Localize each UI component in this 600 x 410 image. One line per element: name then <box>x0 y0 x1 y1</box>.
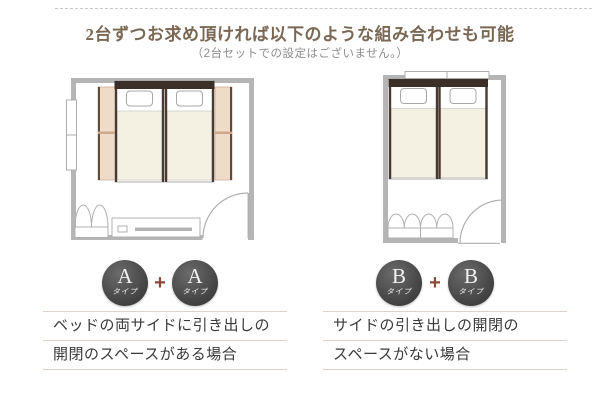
type-letter: B <box>376 264 422 288</box>
type-badge-a: A タイプ <box>102 260 148 306</box>
caption-a: ベッドの両サイドに引き出しの 開閉のスペースがある場合 <box>43 311 287 370</box>
side-drawer-right <box>215 87 232 180</box>
bed-icon <box>115 81 165 182</box>
caption-line: ベッドの両サイドに引き出しの <box>43 312 287 341</box>
headboard <box>389 79 439 87</box>
side-drawer-left <box>98 87 115 180</box>
type-badge-b: B タイプ <box>448 260 494 306</box>
top-dashed-divider <box>55 8 592 9</box>
headboard <box>438 79 488 87</box>
page-subtitle: （2台セットでの設定はございません。） <box>0 45 600 61</box>
page-title: 2台ずつお求め頂ければ以下のような組み合わせも可能 <box>0 20 600 45</box>
bed-icon <box>165 81 215 182</box>
type-suffix: タイプ <box>102 288 148 296</box>
pillow-icon <box>127 91 153 106</box>
type-suffix: タイプ <box>448 288 494 296</box>
floorplan-b-diagram <box>370 62 520 252</box>
caption-line: スペースがない場合 <box>323 341 567 370</box>
bed-combination-infographic: 2台ずつお求め頂ければ以下のような組み合わせも可能 （2台セットでの設定はござい… <box>0 0 600 410</box>
floorplan-a-diagram <box>62 62 262 252</box>
pillow-icon <box>450 89 476 104</box>
caption-b: サイドの引き出しの開閉の スペースがない場合 <box>323 311 567 370</box>
headboard <box>165 81 215 89</box>
caption-line: 開閉のスペースがある場合 <box>43 341 287 370</box>
caption-line: サイドの引き出しの開閉の <box>323 312 567 341</box>
type-suffix: タイプ <box>172 288 218 296</box>
window-icon <box>67 100 77 170</box>
headboard <box>115 81 165 89</box>
type-letter: B <box>448 264 494 288</box>
tv-board-icon <box>112 218 200 237</box>
plus-sign: + <box>424 270 446 296</box>
pillow-icon <box>401 89 427 104</box>
plus-sign: + <box>149 270 171 296</box>
type-badge-b: B タイプ <box>376 260 422 306</box>
bed-icon <box>389 79 439 179</box>
type-suffix: タイプ <box>376 288 422 296</box>
window-icon <box>405 72 489 79</box>
type-badge-a: A タイプ <box>172 260 218 306</box>
bed-icon <box>438 79 488 179</box>
pillow-icon <box>177 91 203 106</box>
type-letter: A <box>172 264 218 288</box>
type-letter: A <box>102 264 148 288</box>
